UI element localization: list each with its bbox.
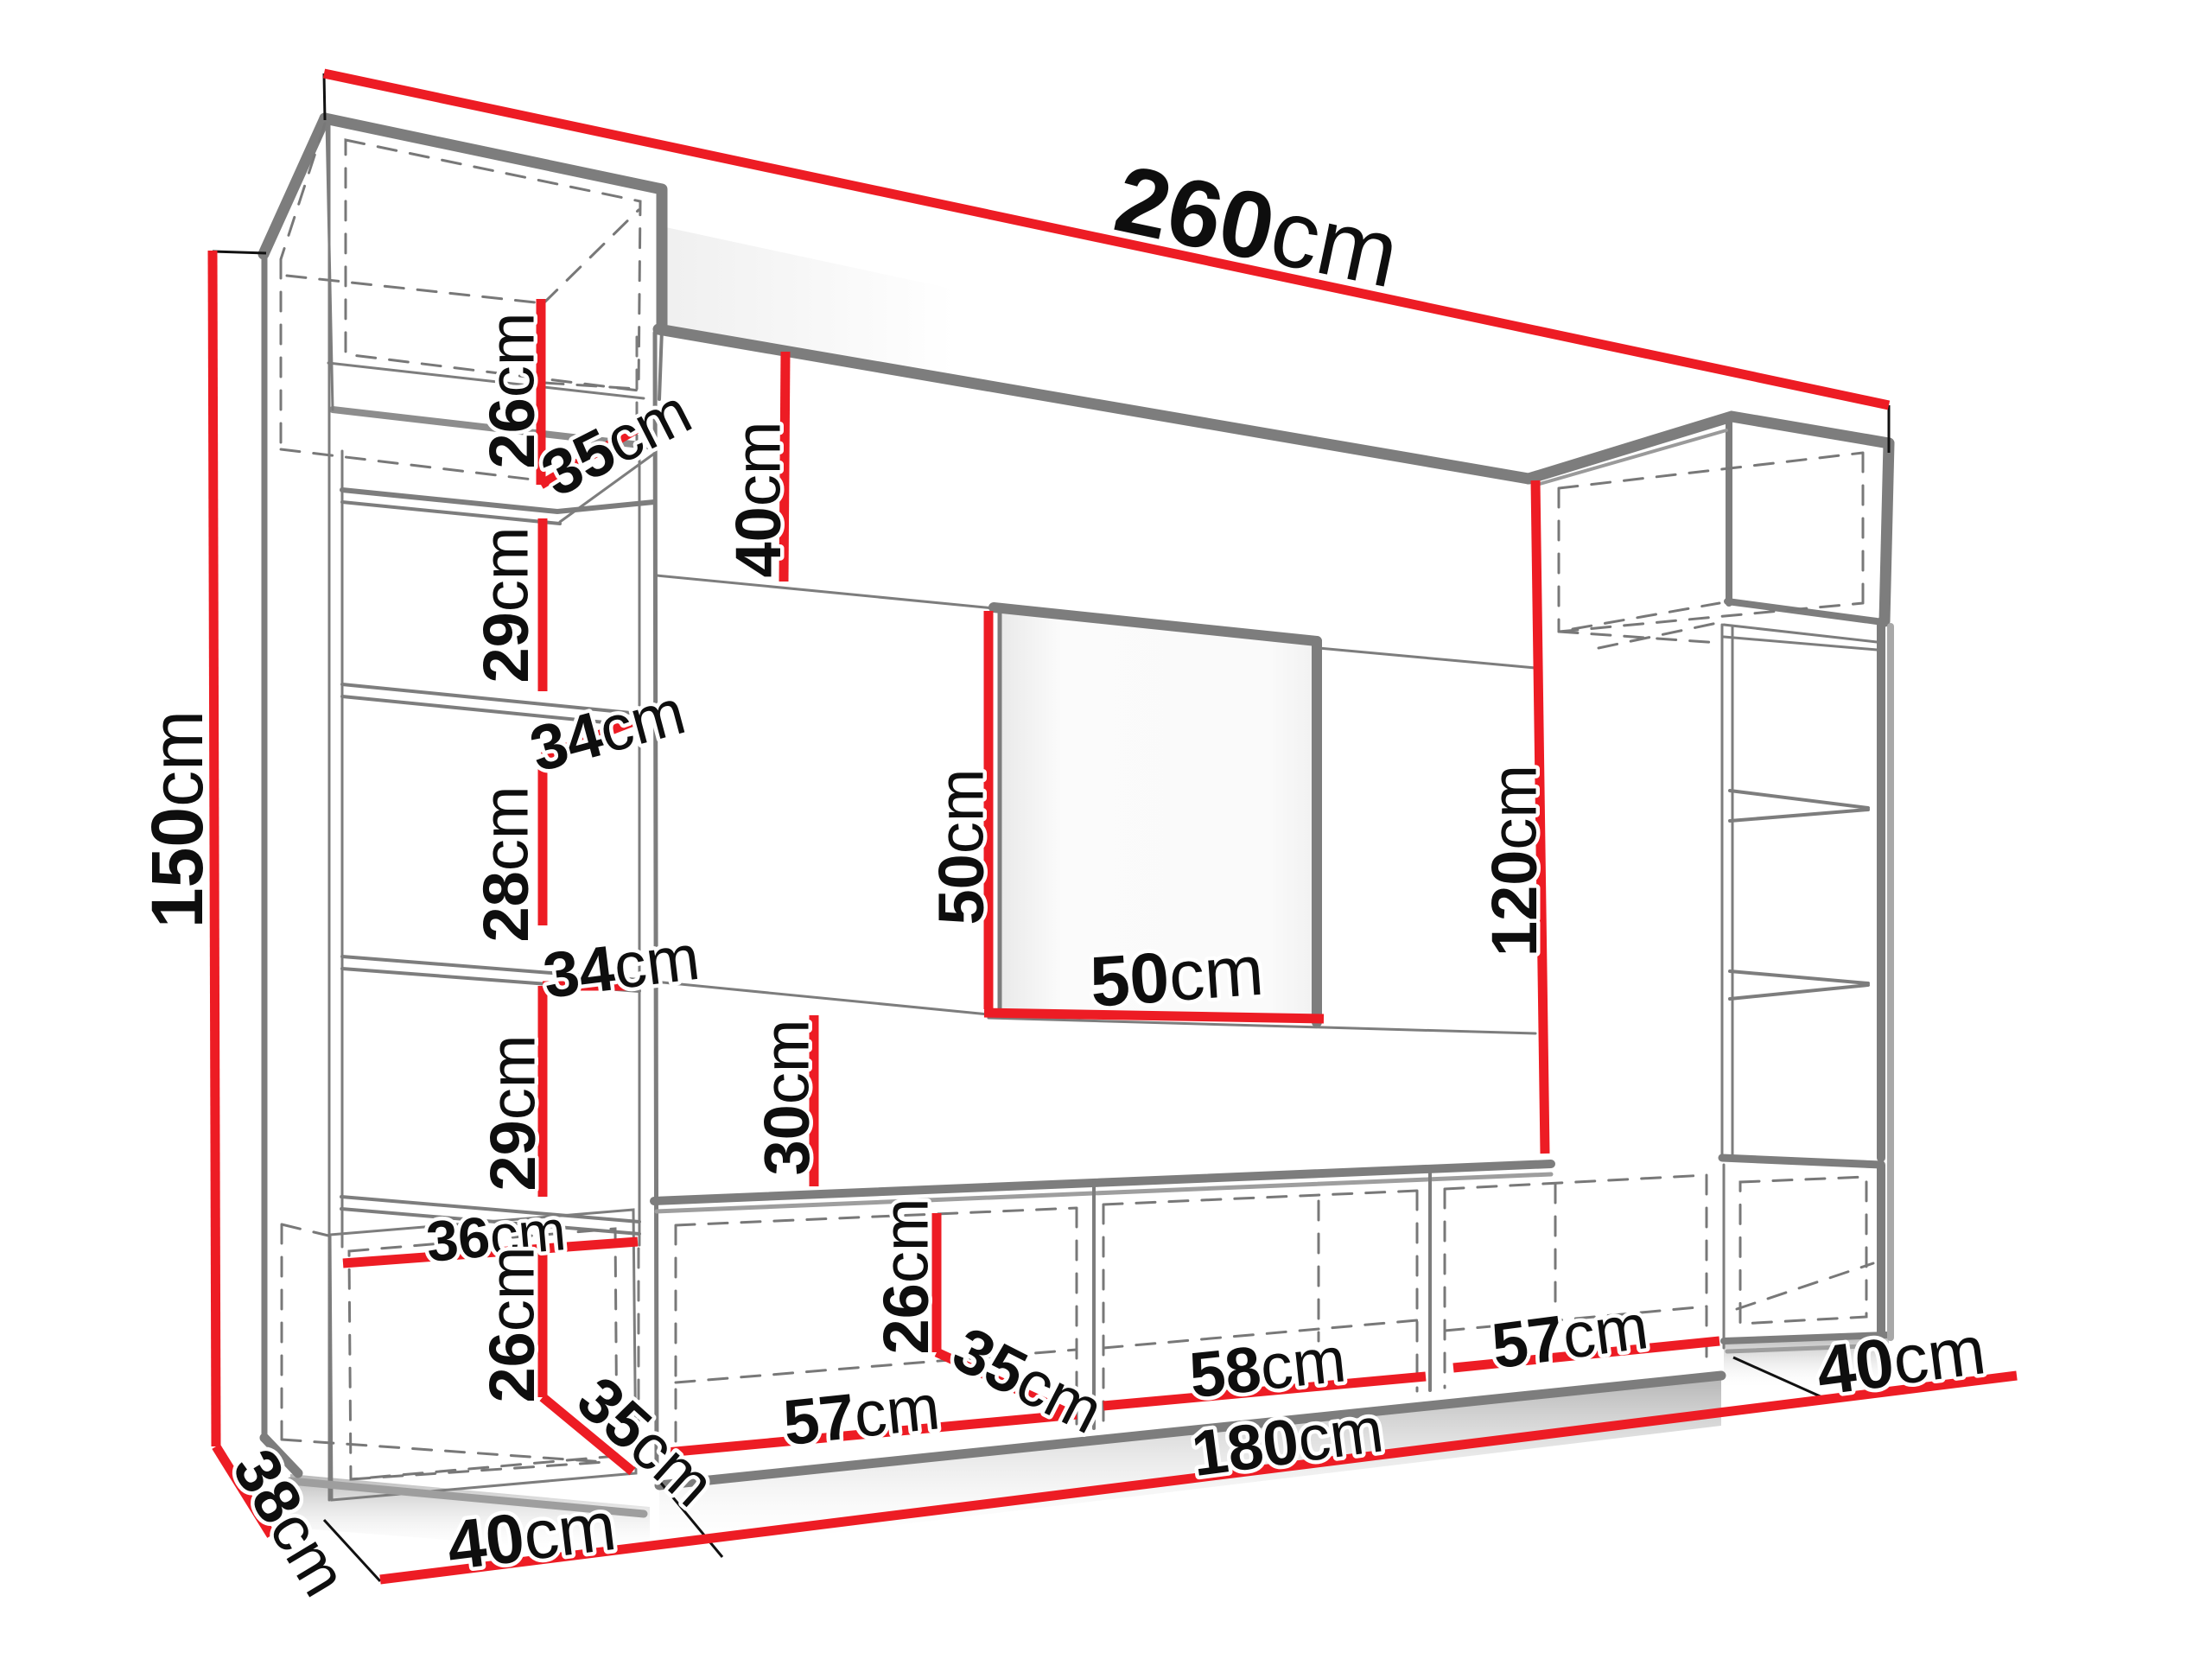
svg-text:50cm: 50cm [1088, 931, 1266, 1022]
svg-text:57cm: 57cm [1488, 1290, 1652, 1382]
svg-text:150cm: 150cm [137, 710, 218, 928]
svg-text:40cm: 40cm [722, 422, 794, 578]
svg-text:30cm: 30cm [751, 1020, 823, 1176]
svg-text:29cm: 29cm [477, 1035, 549, 1192]
svg-text:50cm: 50cm [925, 769, 997, 925]
svg-text:260cm: 260cm [1107, 145, 1408, 308]
svg-text:58cm: 58cm [1186, 1323, 1350, 1410]
svg-text:26cm: 26cm [870, 1198, 942, 1355]
svg-text:34cm: 34cm [523, 675, 692, 785]
svg-text:28cm: 28cm [470, 786, 542, 943]
svg-text:120cm: 120cm [1478, 765, 1550, 957]
svg-text:40cm: 40cm [1812, 1311, 1990, 1409]
svg-text:57cm: 57cm [780, 1370, 944, 1458]
svg-text:29cm: 29cm [470, 527, 542, 683]
svg-text:26cm: 26cm [476, 1247, 548, 1403]
svg-text:34cm: 34cm [539, 921, 703, 1011]
